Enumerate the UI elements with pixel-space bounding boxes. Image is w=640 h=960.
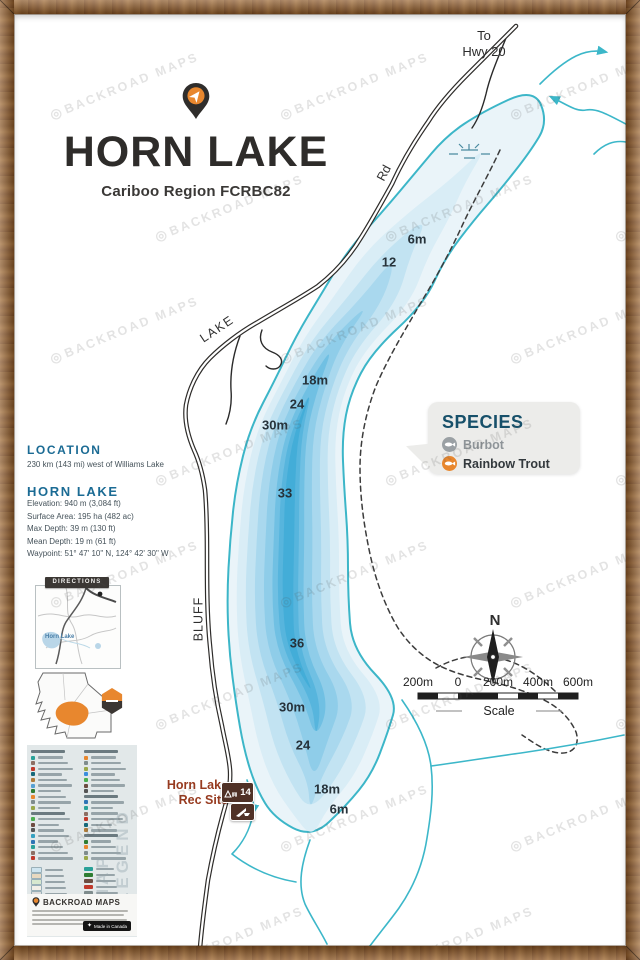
legend-item: [84, 817, 123, 821]
depth-label-12: 12: [382, 255, 396, 270]
depth-label-6m: 6m: [330, 802, 349, 817]
wood-frame-bottom: [0, 946, 640, 960]
legend-item: [31, 828, 64, 832]
to-hwy-label: To Hwy 20: [444, 28, 524, 59]
stat-waypoint: Waypoint: 51° 47' 10" N, 124° 42' 30" W: [27, 549, 207, 559]
scale-tick-label: 600m: [556, 675, 600, 689]
legend-swatch-item: [84, 873, 115, 877]
legend-item: [84, 840, 111, 844]
legend-item: [84, 784, 125, 788]
depth-label-24: 24: [290, 397, 304, 412]
rainbow-trout-fish-icon: [442, 456, 457, 471]
brand-row: BACKROAD MAPS: [32, 897, 132, 907]
depth-label-24: 24: [296, 738, 310, 753]
legend-item: [84, 772, 115, 776]
legend-item: [31, 789, 61, 793]
frame-miter: [626, 0, 640, 14]
legend-item: [84, 806, 113, 810]
campsite-icon: [224, 786, 238, 800]
wood-frame-top: [0, 0, 640, 14]
location-heading: LOCATION: [27, 443, 207, 457]
legend-item: [84, 761, 121, 765]
rec-site-icon: 14: [221, 782, 254, 803]
legend-item: [31, 761, 68, 765]
legend-item: [31, 817, 70, 821]
scale-tick-label: 200m: [396, 675, 440, 689]
legend-item: [31, 772, 62, 776]
rec-site-line2: Rec Site: [148, 793, 228, 808]
legend-item: [31, 840, 58, 844]
directions-banner: DIRECTIONS: [45, 577, 109, 588]
brand-name: BACKROAD MAPS: [43, 898, 120, 907]
legend-item: [84, 812, 118, 816]
location-text: 230 km (143 mi) west of Williams Lake: [27, 460, 207, 470]
legend-item: [84, 828, 117, 832]
species-heading: SPECIES: [442, 412, 580, 433]
legend-item: [31, 851, 68, 855]
species-row-burbot: Burbot: [442, 437, 580, 452]
made-in-canada-text: Made in Canada: [94, 924, 127, 929]
maple-leaf-icon: ✦: [87, 923, 92, 929]
brand-pin-icon: [181, 82, 211, 120]
legend-item: [31, 756, 63, 760]
legend-item: [84, 845, 116, 849]
legend-item: [84, 851, 121, 855]
legend-item: [31, 856, 73, 860]
legend-swatch-item: [84, 867, 114, 871]
lake-map-poster: HORN LAKE Cariboo Region FCRBC82 To Hwy …: [0, 0, 640, 960]
scale-caption: Scale: [468, 704, 530, 718]
compass-north-label: N: [487, 612, 503, 629]
map-title: HORN LAKE: [58, 131, 334, 174]
legend-item: [84, 778, 120, 782]
legend-item: [84, 823, 112, 827]
title-block: HORN LAKE Cariboo Region FCRBC82: [58, 82, 334, 200]
region-inset-map: [33, 670, 121, 744]
species-name: Rainbow Trout: [463, 457, 550, 471]
legend-item: [84, 750, 118, 753]
location-info-block: LOCATION 230 km (143 mi) west of William…: [27, 443, 207, 562]
frame-miter: [0, 0, 14, 14]
legend-item: [31, 845, 63, 849]
frame-miter: [0, 946, 14, 960]
depth-label-30m: 30m: [279, 700, 305, 715]
legend-item: [84, 795, 118, 798]
species-row-rainbow-trout: Rainbow Trout: [442, 456, 580, 471]
sidebar-footer: BACKROAD MAPS ✦ Made in Canada: [27, 894, 137, 936]
road-label-bluff: BLUFF: [191, 597, 205, 642]
legend-item: [31, 823, 59, 827]
lake-stats-heading: HORN LAKE: [27, 484, 207, 499]
legend-item: [31, 778, 67, 782]
map-subtitle: Cariboo Region FCRBC82: [58, 183, 334, 200]
stat-surface-area: Surface Area: 195 ha (482 ac): [27, 512, 207, 522]
rec-site-number: 14: [240, 787, 251, 798]
legend-item: [31, 750, 65, 753]
legend-swatch-item: [84, 885, 117, 889]
directions-inset-map: Horn Lake: [35, 585, 121, 669]
legend-item: [31, 834, 69, 838]
road-branch-south: [226, 336, 240, 424]
road-branch-hook: [260, 330, 281, 369]
to-hwy-line2: Hwy 20: [444, 44, 524, 60]
legend-item: [31, 784, 72, 788]
rec-site-label: Horn Lake Rec Site: [148, 778, 228, 808]
legend-item: [31, 795, 66, 799]
legend-item: [31, 812, 65, 815]
scale-tick-label: 200m: [476, 675, 520, 689]
depth-label-30m: 30m: [262, 418, 288, 433]
made-in-canada-badge: ✦ Made in Canada: [83, 921, 131, 931]
rec-site-line1: Horn Lake: [148, 778, 228, 793]
stat-max-depth: Max Depth: 39 m (130 ft): [27, 524, 207, 534]
wood-frame-right: [626, 0, 640, 960]
legend-item: [84, 756, 116, 760]
legend-item: [84, 856, 126, 860]
lake-stats: Elevation: 940 m (3,084 ft) Surface Area…: [27, 499, 207, 559]
species-callout: SPECIES Burbot Rainbow Trout: [428, 402, 580, 474]
stat-elevation: Elevation: 940 m (3,084 ft): [27, 499, 207, 509]
legend-item: [31, 806, 60, 810]
legend-item: [84, 834, 118, 837]
legend-item: [31, 767, 73, 771]
legend-item: [84, 767, 126, 771]
depth-label-6m: 6m: [408, 232, 427, 247]
legend-item: [84, 800, 124, 804]
species-name: Burbot: [463, 438, 504, 452]
legend-item: [84, 789, 114, 793]
inset-lake-label: Horn Lake: [45, 634, 74, 640]
brand-pin-icon-small: [32, 897, 40, 907]
legend-swatch-item: [84, 879, 116, 883]
boat-launch-icon: [230, 803, 255, 821]
scale-tick-label: 0: [436, 675, 480, 689]
depth-label-33: 33: [278, 486, 292, 501]
legend-item: [31, 800, 71, 804]
scale-tick-label: 400m: [516, 675, 560, 689]
wood-frame-left: [0, 0, 14, 960]
frame-miter: [626, 946, 640, 960]
burbot-fish-icon: [442, 437, 457, 452]
depth-label-36: 36: [290, 636, 304, 651]
stat-mean-depth: Mean Depth: 19 m (61 ft): [27, 537, 207, 547]
depth-label-18m: 18m: [314, 782, 340, 797]
to-hwy-line1: To: [444, 28, 524, 44]
depth-label-18m: 18m: [302, 373, 328, 388]
